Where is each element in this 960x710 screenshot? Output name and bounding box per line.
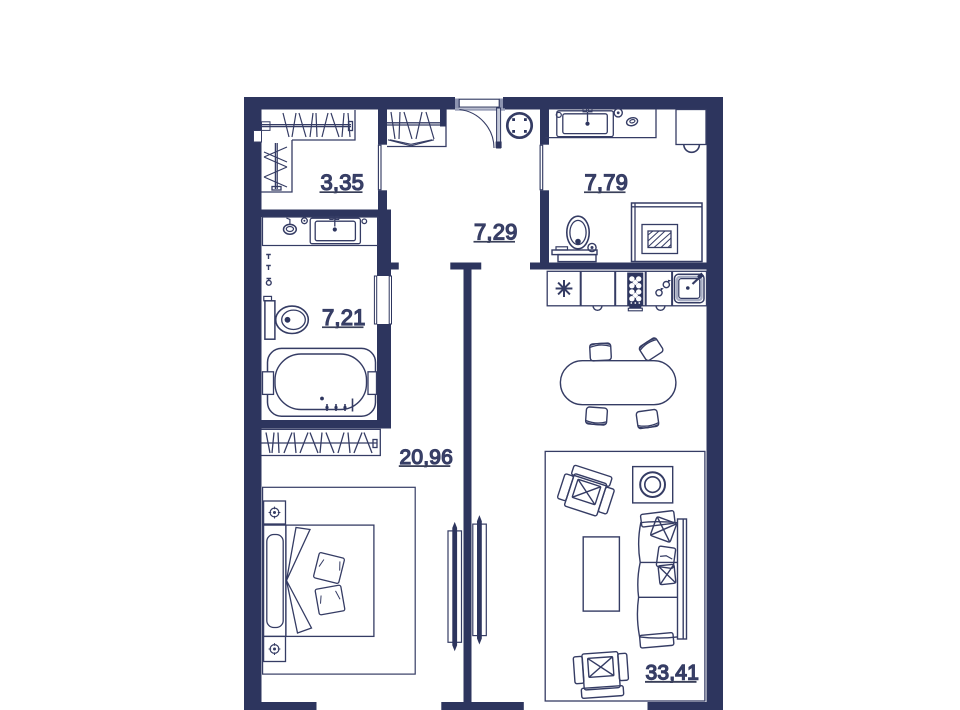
svg-text:7,79: 7,79 bbox=[585, 170, 629, 195]
svg-text:7,29: 7,29 bbox=[474, 220, 518, 245]
svg-text:7,21: 7,21 bbox=[322, 305, 366, 330]
svg-text:3,35: 3,35 bbox=[321, 170, 365, 195]
